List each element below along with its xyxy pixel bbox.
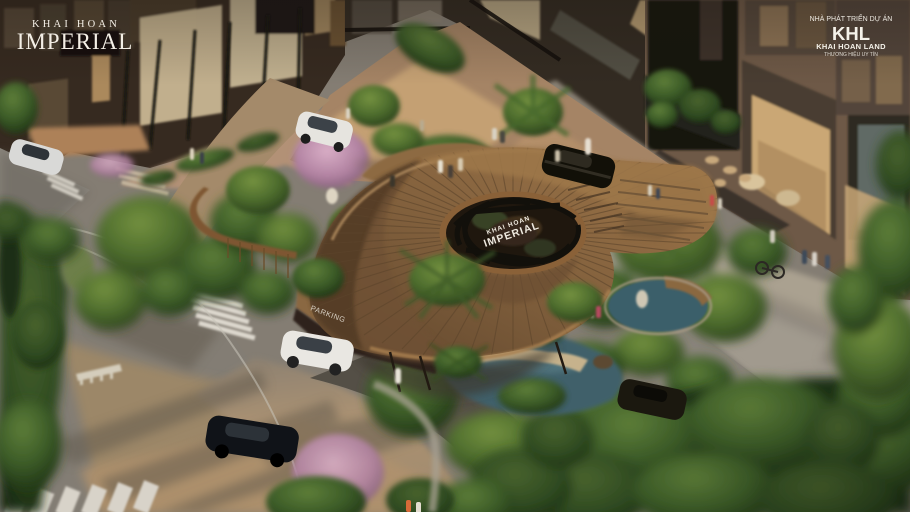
svg-text:KHAI HOAN LAND: KHAI HOAN LAND: [816, 42, 886, 51]
svg-text:KHL: KHL: [832, 23, 870, 44]
svg-text:IMPERIAL: IMPERIAL: [17, 29, 134, 54]
svg-text:THƯƠNG HIỆU UY TÍN: THƯƠNG HIỆU UY TÍN: [824, 50, 878, 58]
svg-text:NHÀ PHÁT TRIỂN DỰ ÁN: NHÀ PHÁT TRIỂN DỰ ÁN: [810, 14, 893, 23]
